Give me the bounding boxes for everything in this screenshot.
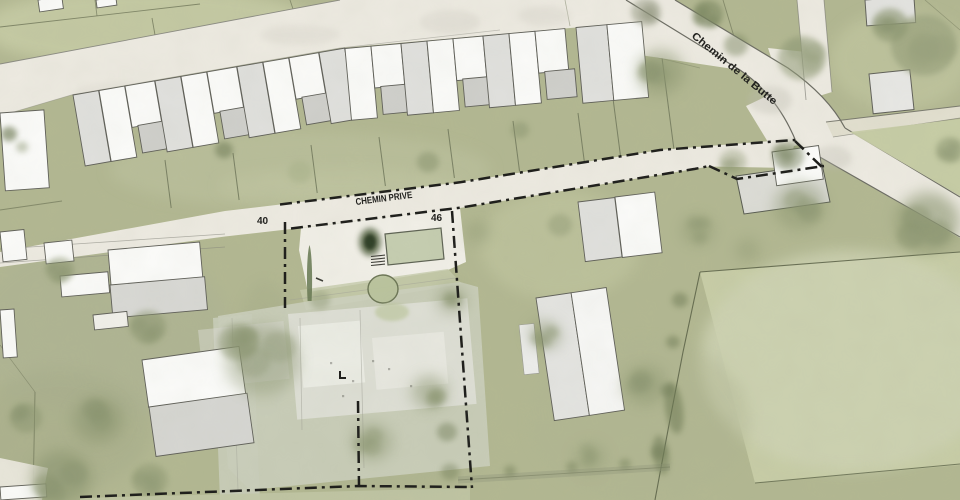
svg-text:40: 40 — [257, 216, 269, 227]
svg-text:46: 46 — [431, 213, 443, 224]
